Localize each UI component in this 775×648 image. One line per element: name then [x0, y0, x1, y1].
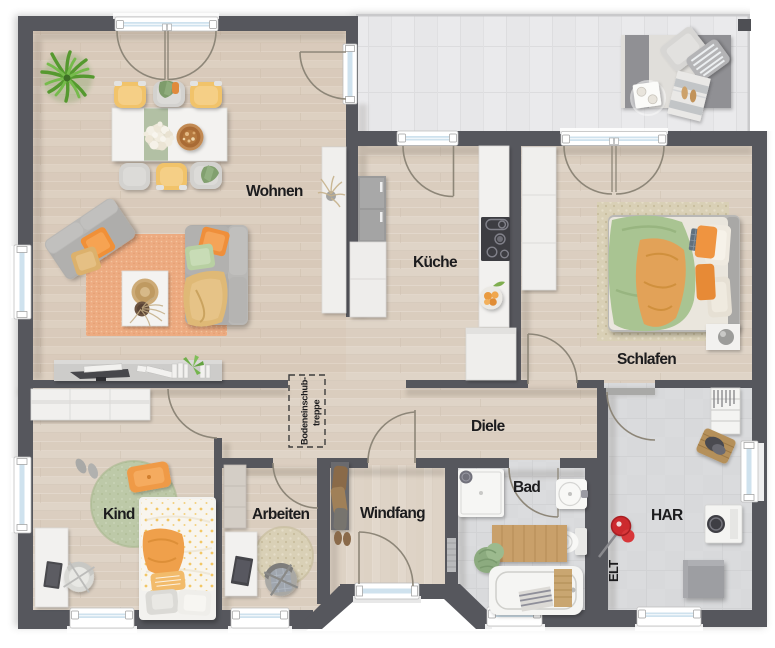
svg-text:Diele: Diele — [471, 418, 506, 435]
svg-text:ELT: ELT — [606, 560, 621, 582]
svg-text:HAR: HAR — [651, 507, 683, 524]
svg-text:Bad: Bad — [513, 479, 540, 496]
svg-text:Küche: Küche — [413, 254, 458, 271]
svg-text:treppe: treppe — [312, 400, 322, 426]
svg-text:Wohnen: Wohnen — [246, 183, 303, 200]
svg-text:Windfang: Windfang — [360, 505, 425, 522]
svg-text:Bodeneinschub-: Bodeneinschub- — [300, 377, 310, 445]
svg-text:Kind: Kind — [103, 506, 135, 523]
svg-text:Arbeiten: Arbeiten — [252, 506, 310, 523]
svg-text:Schlafen: Schlafen — [617, 351, 676, 368]
